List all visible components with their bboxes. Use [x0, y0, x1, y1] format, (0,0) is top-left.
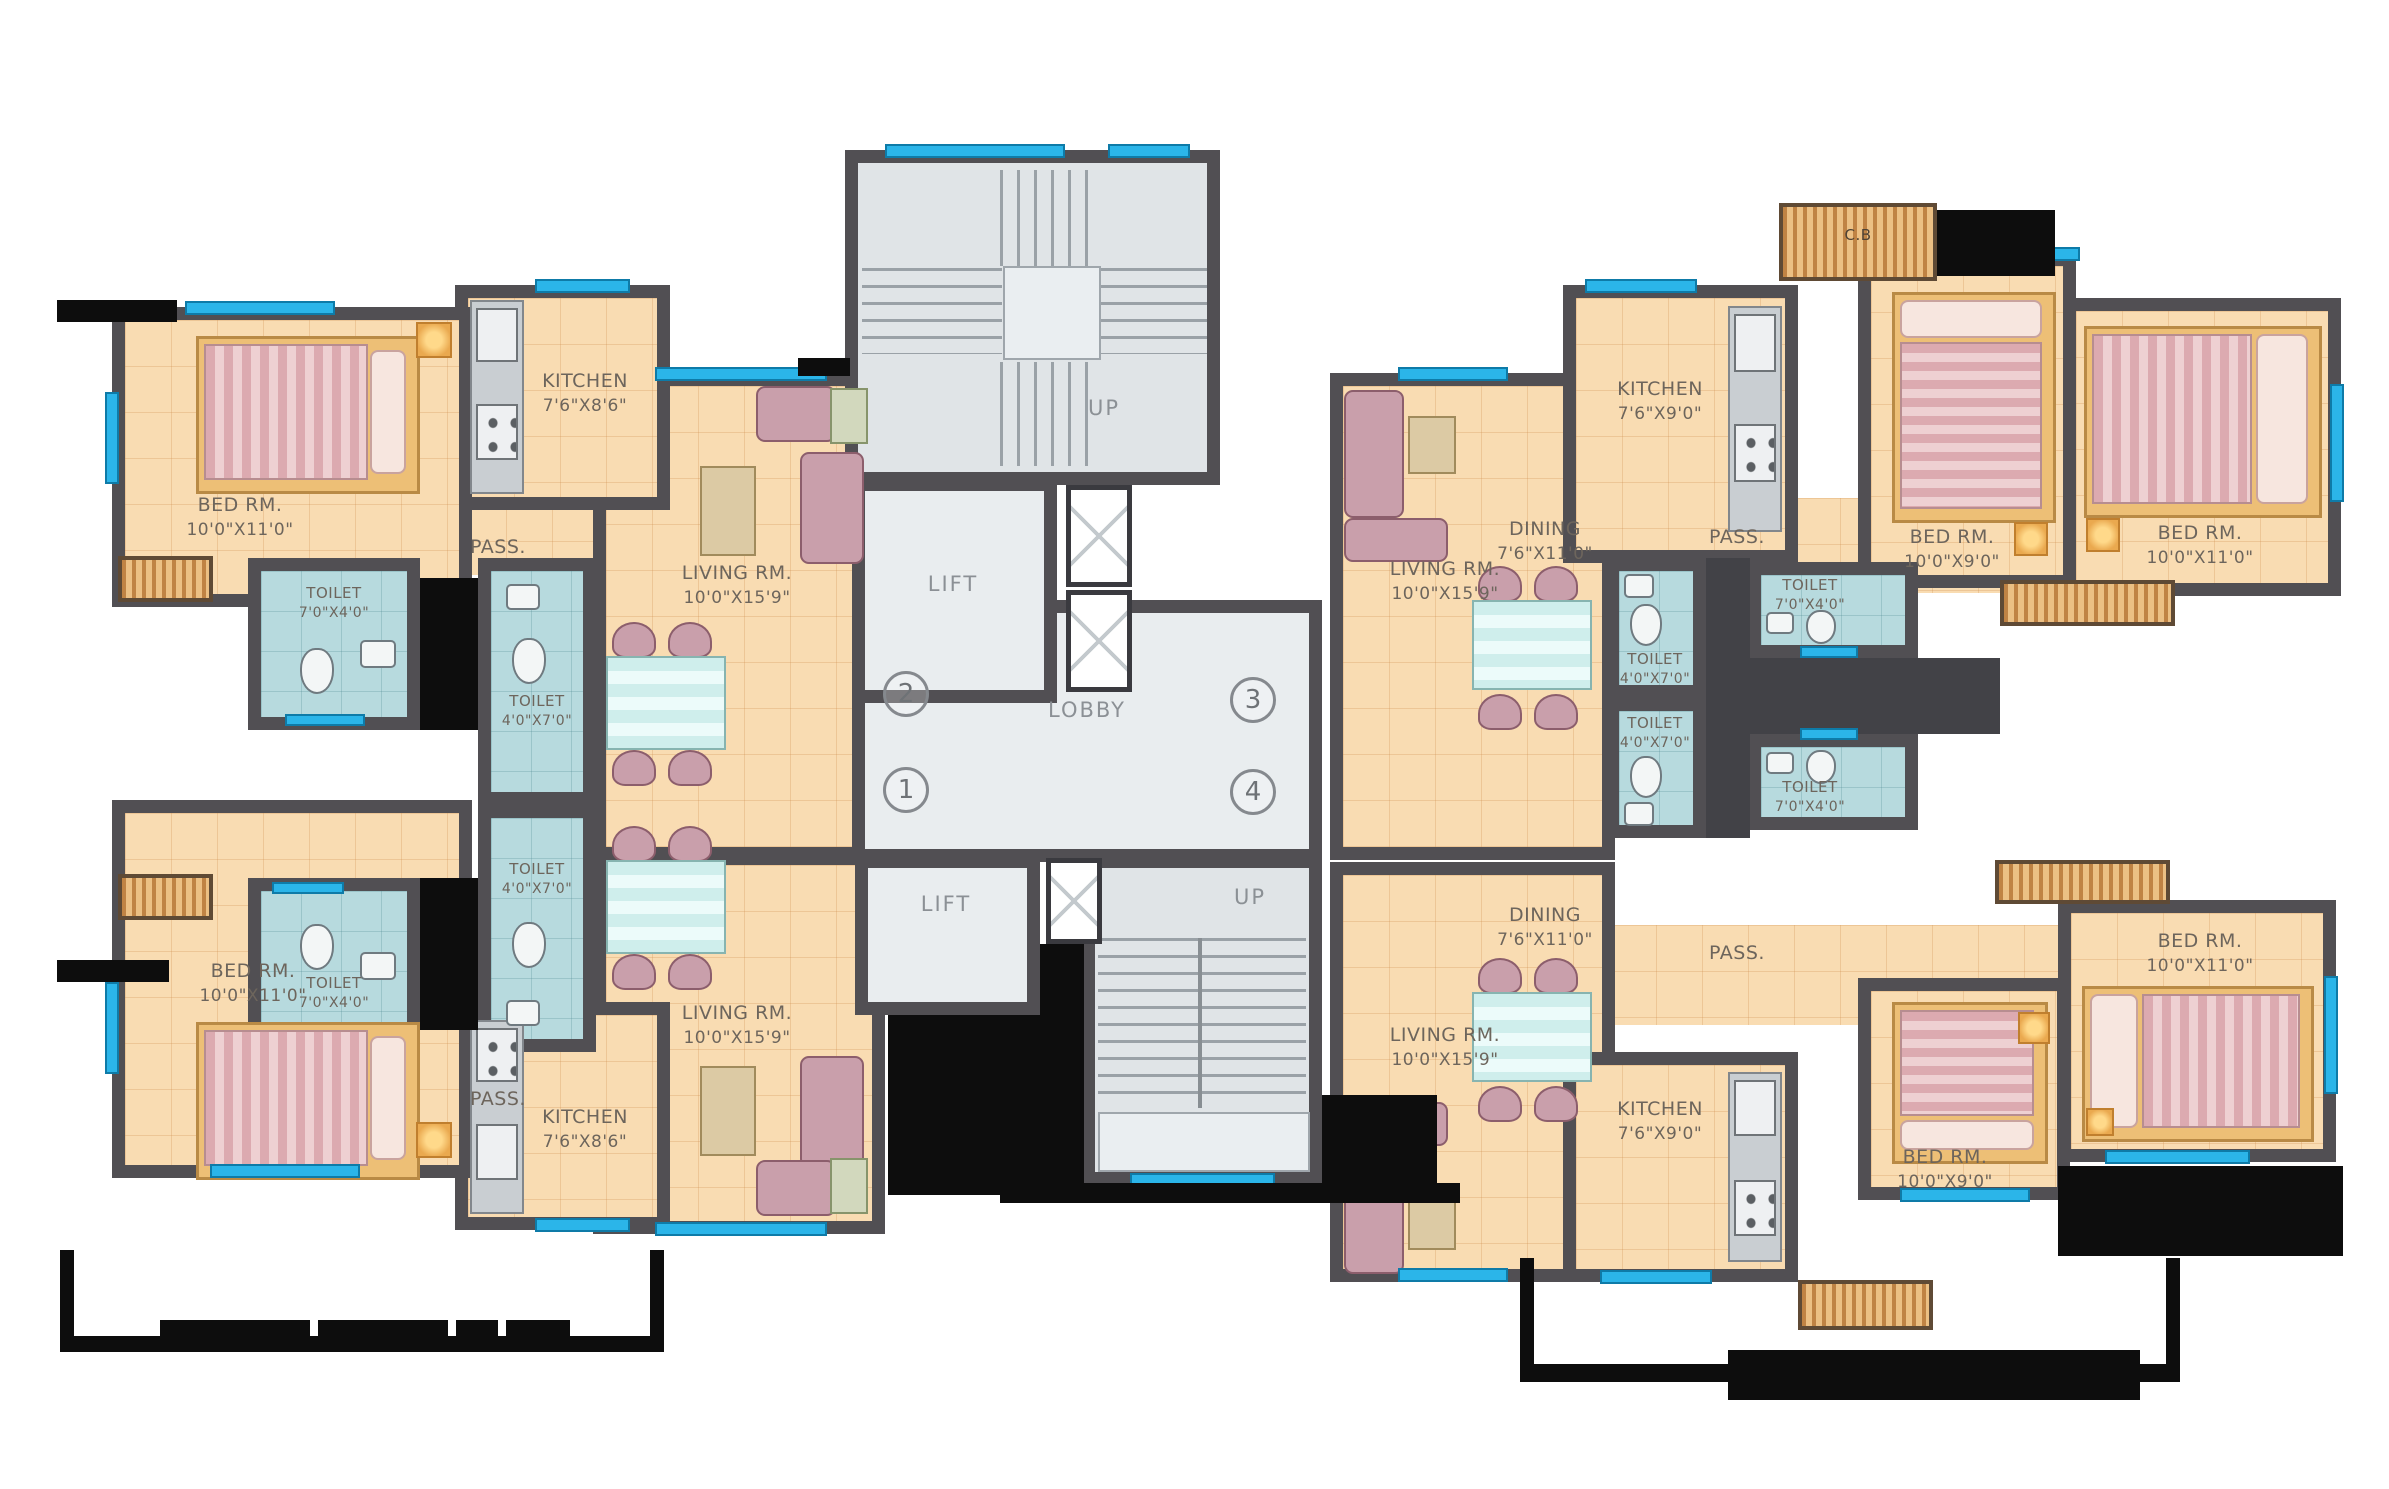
- room-dim: 10'0"X9'0": [1904, 551, 2000, 575]
- flat2-bed-label: BED RM. 10'0"X11'0": [186, 492, 293, 542]
- window: [1585, 279, 1697, 293]
- balcony-ledge: [1995, 860, 2170, 904]
- service-shaft-horizontal: [1750, 658, 2000, 734]
- room-dim: 7'0"X4'0": [1775, 798, 1845, 816]
- black-mass: [1000, 1183, 1460, 1203]
- dining-chair: [612, 954, 656, 990]
- balcony-ledge: [118, 874, 213, 920]
- black-mass: [1937, 210, 2055, 276]
- dining-chair: [612, 622, 656, 658]
- kitchen-stove: [476, 404, 518, 460]
- room-dim: 7'6"X9'0": [1617, 403, 1703, 427]
- window: [885, 144, 1065, 158]
- sofa: [800, 452, 864, 564]
- room-name: TOILET: [1775, 778, 1845, 798]
- room-dim: 7'0"X4'0": [299, 994, 369, 1012]
- toilet-basin: [1766, 612, 1794, 634]
- toilet-wc: [300, 648, 334, 694]
- room-dim: 4'0"X7'0": [1620, 670, 1690, 688]
- dining-chair: [1534, 1086, 1578, 1122]
- duct-box: [1066, 485, 1132, 587]
- black-mass: [1322, 1095, 1437, 1183]
- toilet-wc: [1630, 604, 1662, 646]
- flat3-dining-label: DINING 7'6"X11'0": [1497, 516, 1593, 566]
- redacted-text: [318, 1320, 448, 1338]
- dining-table: [1472, 600, 1592, 690]
- flat1-number-badge: 1: [883, 767, 929, 813]
- stair-divider: [1198, 938, 1202, 1108]
- dining-table: [606, 860, 726, 954]
- duct-box: [1066, 590, 1132, 692]
- room-dim: 10'0"X9'0": [1897, 1171, 1993, 1195]
- flat4-kitchen-label: KITCHEN 7'6"X9'0": [1617, 1096, 1703, 1146]
- window: [655, 1222, 827, 1236]
- room-dim: 7'6"X8'6": [542, 395, 628, 419]
- bedside-lamp: [2086, 518, 2120, 552]
- bed-pillow: [2256, 334, 2308, 504]
- bed-mattress: [204, 1030, 368, 1166]
- bedside-lamp: [416, 322, 452, 358]
- window: [185, 301, 335, 315]
- duct-box: [1046, 858, 1102, 944]
- up-bottom-label: UP: [1234, 885, 1266, 909]
- flat2-toilet-small-label: TOILET 4'0"X7'0": [502, 692, 572, 730]
- bed-mattress: [1900, 342, 2042, 509]
- redacted-text: [456, 1320, 498, 1338]
- dining-chair: [668, 826, 712, 862]
- dining-chair: [668, 954, 712, 990]
- bed-mattress: [2092, 334, 2252, 504]
- toilet-basin: [1624, 802, 1654, 826]
- black-mass: [1040, 944, 1084, 1194]
- redacted-text: [506, 1320, 570, 1338]
- toilet-wc: [512, 638, 546, 684]
- tv-unit: [830, 1158, 868, 1214]
- toilet-basin: [506, 584, 540, 610]
- room-dim: 10'0"X15'9": [1390, 1049, 1500, 1073]
- flat3-bed-b-label: BED RM. 10'0"X11'0": [2146, 520, 2253, 570]
- flat4-living-label: LIVING RM. 10'0"X15'9": [1390, 1022, 1500, 1072]
- room-name: LIVING RM.: [1390, 1022, 1500, 1049]
- bracket-bar: [60, 1336, 664, 1352]
- flat4-number-badge: 4: [1230, 769, 1276, 815]
- lift-bottom: [855, 855, 1040, 1015]
- flat2-living-label: LIVING RM. 10'0"X15'9": [682, 560, 792, 610]
- flat4-toilet-small-label: TOILET 4'0"X7'0": [1620, 714, 1690, 752]
- stair-landing: [1098, 1112, 1310, 1172]
- room-name: TOILET: [1620, 714, 1690, 734]
- flat4-dining-label: DINING 7'6"X11'0": [1497, 902, 1593, 952]
- flat2-number-badge: 2: [883, 671, 929, 717]
- bedside-lamp: [2086, 1108, 2114, 1136]
- dining-chair: [612, 826, 656, 862]
- bed-pillow: [370, 1036, 406, 1160]
- floor-plan: UP LOBBY LIFT LIFT UP 2 1 3 4: [0, 0, 2389, 1489]
- room-name: TOILET: [502, 692, 572, 712]
- room-name: KITCHEN: [542, 1104, 628, 1131]
- room-dim: 7'6"X11'0": [1497, 929, 1593, 953]
- stair-flight: [1000, 170, 1100, 266]
- kitchen-stove: [476, 1028, 518, 1082]
- window: [1398, 367, 1508, 381]
- black-mass: [57, 960, 169, 982]
- flat4-toilet-main-label: TOILET 7'0"X4'0": [1775, 778, 1845, 816]
- bed-mattress: [204, 344, 368, 480]
- stair-flight: [1000, 362, 1100, 466]
- room-dim: 10'0"X11'0": [199, 985, 306, 1009]
- bracket-tick: [650, 1250, 664, 1352]
- dining-chair: [1478, 694, 1522, 730]
- room-name: BED RM.: [199, 958, 306, 985]
- window: [2105, 1150, 2250, 1164]
- room-dim: 10'0"X11'0": [2146, 547, 2253, 571]
- redacted-text: [1728, 1350, 2140, 1400]
- bedside-lamp: [416, 1122, 452, 1158]
- toilet-wc: [1806, 610, 1836, 644]
- bed-mattress: [2142, 994, 2300, 1128]
- black-mass: [420, 578, 478, 730]
- dining-chair: [612, 750, 656, 786]
- room-dim: 4'0"X7'0": [502, 712, 572, 730]
- room-name: TOILET: [299, 584, 369, 604]
- room-name: BED RM.: [186, 492, 293, 519]
- room-name: BED RM.: [2146, 520, 2253, 547]
- flat3-cupboard-label: C.B: [1844, 226, 1871, 246]
- dining-chair: [1534, 566, 1578, 602]
- dining-table: [606, 656, 726, 750]
- toilet-wc: [1630, 756, 1662, 798]
- bed-pillow: [370, 350, 406, 474]
- room-dim: 7'6"X11'0": [1497, 543, 1593, 567]
- window: [535, 279, 630, 293]
- toilet-basin: [1624, 574, 1654, 598]
- bracket-tick: [2166, 1258, 2180, 1366]
- toilet-basin: [360, 640, 396, 668]
- stair-flight: [1202, 938, 1306, 1108]
- stair-flight: [1097, 268, 1207, 354]
- dining-chair: [668, 622, 712, 658]
- room-name: KITCHEN: [1617, 376, 1703, 403]
- bracket-tick: [1520, 1258, 1534, 1366]
- balcony-ledge: [118, 556, 213, 602]
- room-dim: 7'0"X4'0": [299, 604, 369, 622]
- room-name: BED RM.: [1897, 1144, 1993, 1171]
- flat3-pass-label: PASS.: [1709, 524, 1765, 551]
- balcony-ledge: [2000, 580, 2175, 626]
- window: [285, 714, 365, 726]
- bed-pillow: [1900, 300, 2042, 338]
- room-dim: 10'0"X15'9": [1390, 583, 1500, 607]
- window: [210, 1164, 360, 1178]
- flat2-toilet-main-label: TOILET 7'0"X4'0": [299, 584, 369, 622]
- window: [1600, 1270, 1712, 1284]
- window: [1398, 1268, 1508, 1282]
- kitchen-sink: [1734, 314, 1776, 372]
- service-shaft-vertical: [1706, 558, 1750, 838]
- window: [105, 982, 119, 1074]
- bedside-lamp: [2018, 1012, 2050, 1044]
- kitchen-sink: [476, 308, 518, 362]
- coffee-table: [700, 466, 756, 556]
- sofa: [1344, 390, 1404, 518]
- cupboard: [1798, 1280, 1933, 1330]
- room-dim: 7'0"X4'0": [1775, 596, 1845, 614]
- flat1-bed-label: BED RM. 10'0"X11'0": [199, 958, 306, 1008]
- flat3-kitchen-label: KITCHEN 7'6"X9'0": [1617, 376, 1703, 426]
- room-name: LIVING RM.: [1390, 556, 1500, 583]
- sofa: [800, 1056, 864, 1168]
- up-top-label: UP: [1088, 396, 1120, 420]
- bedside-lamp: [2014, 522, 2048, 556]
- room-name: BED RM.: [2146, 928, 2253, 955]
- room-name: TOILET: [299, 974, 369, 994]
- coffee-table: [1408, 416, 1456, 474]
- room-name: DINING: [1497, 516, 1593, 543]
- room-dim: 7'6"X9'0": [1617, 1123, 1703, 1147]
- black-mass: [420, 878, 478, 1030]
- tv-unit: [830, 388, 868, 444]
- black-mass: [2058, 1166, 2343, 1256]
- room-dim: 10'0"X15'9": [682, 1027, 792, 1051]
- redacted-text: [160, 1320, 310, 1338]
- flat4-bed-b-label: BED RM. 10'0"X11'0": [2146, 928, 2253, 978]
- room-dim: 4'0"X7'0": [502, 880, 572, 898]
- stair-flight: [1098, 938, 1198, 1108]
- black-mass: [798, 358, 850, 376]
- room-dim: 4'0"X7'0": [1620, 734, 1690, 752]
- flat4-bed-a-label: BED RM. 10'0"X9'0": [1897, 1144, 1993, 1194]
- flat3-number-badge: 3: [1230, 677, 1276, 723]
- window: [2330, 384, 2344, 502]
- flat2-kitchen-label: KITCHEN 7'6"X8'6": [542, 368, 628, 418]
- lobby-label: LOBBY: [1048, 698, 1126, 722]
- toilet-basin: [1766, 752, 1794, 774]
- flat2-pass-label: PASS.: [470, 534, 526, 561]
- room-name: BED RM.: [1904, 524, 2000, 551]
- armchair: [756, 386, 836, 442]
- kitchen-stove: [1734, 1180, 1776, 1236]
- flat3-living-label: LIVING RM. 10'0"X15'9": [1390, 556, 1500, 606]
- window: [1800, 728, 1858, 740]
- dining-chair: [1478, 1086, 1522, 1122]
- window: [272, 882, 344, 894]
- room-name: TOILET: [1620, 650, 1690, 670]
- flat3-toilet-small-label: TOILET 4'0"X7'0": [1620, 650, 1690, 688]
- window: [1800, 646, 1858, 658]
- flat3-bed-a-label: BED RM. 10'0"X9'0": [1904, 524, 2000, 574]
- dining-chair: [668, 750, 712, 786]
- kitchen-sink: [1734, 1080, 1776, 1136]
- lift-top-label: LIFT: [928, 572, 978, 596]
- stair-landing: [1003, 266, 1101, 360]
- flat1-living-label: LIVING RM. 10'0"X15'9": [682, 1000, 792, 1050]
- window: [1108, 144, 1190, 158]
- stair-flight: [862, 268, 1002, 354]
- window: [2324, 976, 2338, 1094]
- flat1-toilet-main-label: TOILET 7'0"X4'0": [299, 974, 369, 1012]
- lift-bottom-label: LIFT: [921, 892, 971, 916]
- room-dim: 7'6"X8'6": [542, 1131, 628, 1155]
- dining-chair: [1534, 694, 1578, 730]
- room-name: KITCHEN: [542, 368, 628, 395]
- bed-mattress: [1900, 1010, 2034, 1116]
- room-name: LIVING RM.: [682, 1000, 792, 1027]
- room-dim: 10'0"X11'0": [2146, 955, 2253, 979]
- flat1-kitchen-label: KITCHEN 7'6"X8'6": [542, 1104, 628, 1154]
- toilet-basin: [506, 1000, 540, 1026]
- armchair: [756, 1160, 836, 1216]
- flat1-toilet-small-label: TOILET 4'0"X7'0": [502, 860, 572, 898]
- dining-chair: [1534, 958, 1578, 994]
- room-name: TOILET: [1775, 576, 1845, 596]
- flat1-pass-label: PASS.: [470, 1086, 526, 1113]
- room-name: KITCHEN: [1617, 1096, 1703, 1123]
- black-mass: [57, 300, 177, 322]
- room-dim: 10'0"X11'0": [186, 519, 293, 543]
- kitchen-stove: [1734, 424, 1776, 482]
- flat4-pass-label: PASS.: [1709, 940, 1765, 967]
- room-name: LIVING RM.: [682, 560, 792, 587]
- toilet-wc: [512, 922, 546, 968]
- coffee-table: [700, 1066, 756, 1156]
- window: [535, 1218, 630, 1232]
- room-name: DINING: [1497, 902, 1593, 929]
- flat3-toilet-main-label: TOILET 7'0"X4'0": [1775, 576, 1845, 614]
- window: [105, 392, 119, 484]
- room-dim: 10'0"X15'9": [682, 587, 792, 611]
- room-name: TOILET: [502, 860, 572, 880]
- kitchen-sink: [476, 1124, 518, 1180]
- dining-chair: [1478, 958, 1522, 994]
